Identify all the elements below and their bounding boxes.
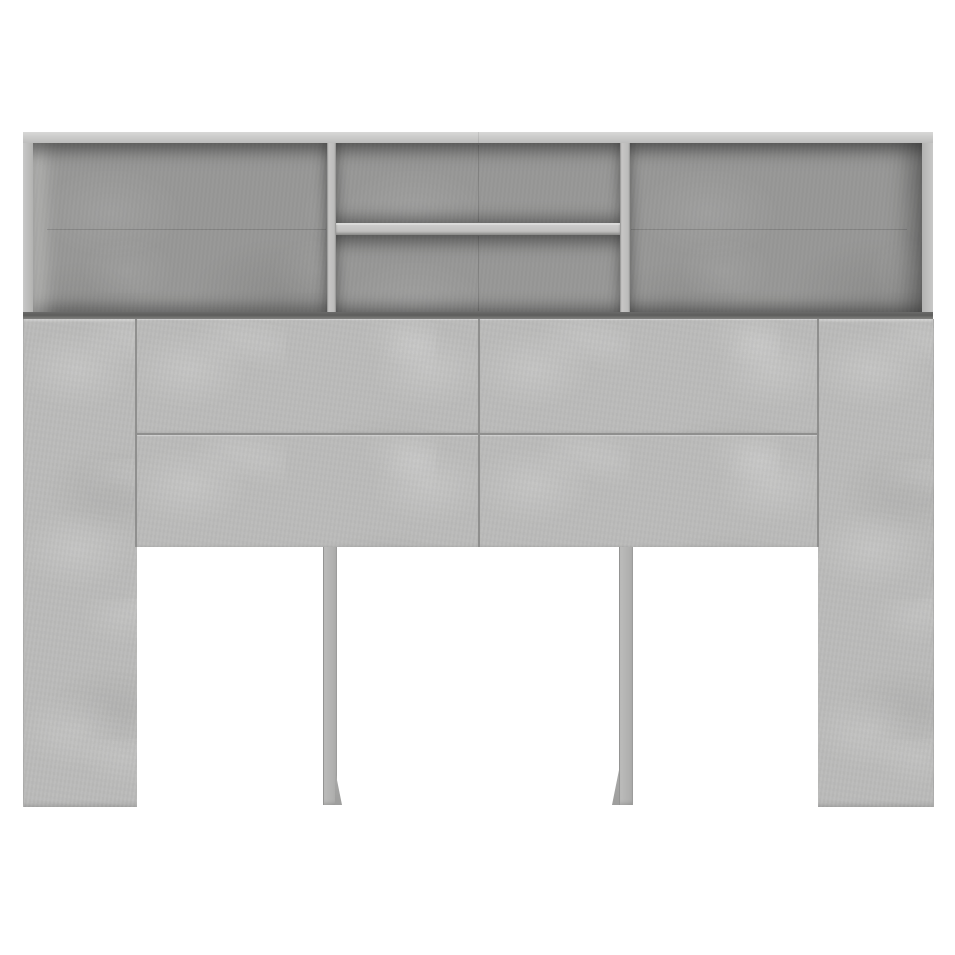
back-panel-seam — [478, 145, 479, 222]
right-shelf-compartment — [630, 143, 922, 312]
panel-seam-horizontal — [136, 433, 818, 435]
middle-shelf-board — [336, 223, 620, 235]
front-panel-top-left — [136, 319, 478, 433]
product-photo-canvas — [0, 0, 955, 955]
back-panel-seam — [478, 236, 479, 311]
back-panel-seam — [631, 229, 907, 230]
support-leg-right — [619, 547, 633, 805]
top-board-seam — [478, 132, 479, 143]
support-leg-right-wedge — [612, 770, 619, 805]
left-shelf-compartment — [33, 143, 327, 312]
right-side-panel-edge — [922, 143, 933, 312]
front-panel-bottom-right — [480, 435, 818, 547]
left-side-panel-edge — [23, 143, 33, 312]
front-panel-bottom-left — [136, 435, 478, 547]
support-leg-left-wedge — [335, 770, 342, 805]
shelf-divider-right — [620, 143, 630, 312]
back-panel-seam — [47, 229, 326, 230]
support-leg-left — [323, 547, 337, 805]
right-column-leg — [818, 319, 934, 807]
front-panel-top-right — [480, 319, 818, 433]
under-shelf-shadow — [23, 312, 933, 319]
left-column-leg — [23, 319, 137, 807]
shelf-divider-left — [327, 143, 336, 312]
